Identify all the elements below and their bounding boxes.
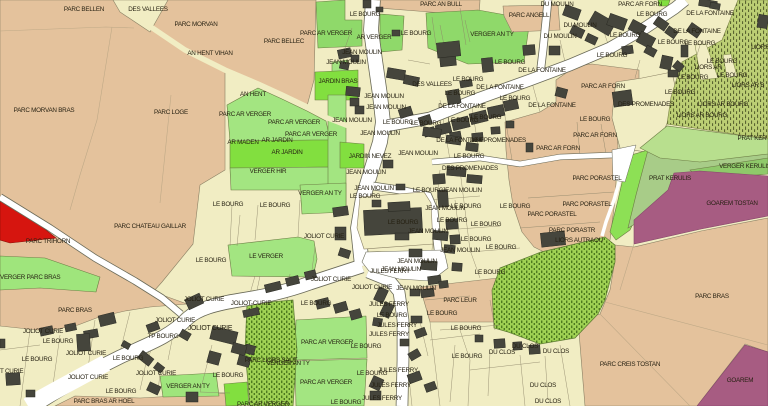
- svg-text:DU CLOS: DU CLOS: [530, 382, 556, 389]
- svg-text:PARC LEUR: PARC LEUR: [443, 297, 477, 304]
- svg-text:PARC BELLEN: PARC BELLEN: [64, 6, 105, 13]
- svg-text:LE BOURG: LE BOURG: [388, 219, 419, 226]
- svg-text:LE BOURG: LE BOURG: [685, 40, 716, 47]
- svg-text:PRAT KER: PRAT KER: [738, 135, 768, 142]
- svg-text:JARDIN BRAS: JARDIN BRAS: [319, 78, 358, 85]
- svg-text:PRAT KERULIS: PRAT KERULIS: [649, 175, 691, 182]
- svg-text:DES VALLEES: DES VALLEES: [412, 81, 452, 88]
- svg-text:JOLIOT CURIE: JOLIOT CURIE: [23, 328, 63, 335]
- svg-text:JOLIOT CURIE: JOLIOT CURIE: [184, 296, 224, 303]
- svg-text:LE BOURG: LE BOURG: [717, 72, 748, 79]
- svg-text:PARC PORASTR: PARC PORASTR: [549, 227, 596, 234]
- svg-text:JOLIOT CURIE: JOLIOT CURIE: [352, 284, 392, 291]
- svg-text:LE VERGER: LE VERGER: [249, 253, 283, 260]
- svg-text:LE BOURG: LE BOURG: [377, 312, 408, 319]
- svg-text:PARC AR FORN: PARC AR FORN: [536, 145, 580, 152]
- svg-text:DE LA FONTAINE: DE LA FONTAINE: [476, 84, 524, 91]
- svg-text:JEAN MOULIN: JEAN MOULIN: [396, 285, 436, 292]
- svg-text:LIORS: LIORS: [751, 44, 768, 51]
- svg-text:LE BOURG: LE BOURG: [413, 187, 444, 194]
- svg-text:PARC AR VERGER: PARC AR VERGER: [285, 131, 338, 138]
- svg-text:JULES FERRY: JULES FERRY: [378, 367, 419, 374]
- svg-text:LE BOURG: LE BOURG: [445, 90, 476, 97]
- svg-text:DES PROMENADES: DES PROMENADES: [442, 165, 498, 172]
- svg-text:DES VALLEES: DES VALLEES: [128, 6, 168, 13]
- svg-text:JULES FERRY: JULES FERRY: [377, 322, 418, 329]
- svg-text:LE BOURG: LE BOURG: [43, 338, 74, 345]
- svg-text:JEAN MOULIN: JEAN MOULIN: [408, 228, 448, 235]
- svg-text:JEAN MOULIN: JEAN MOULIN: [346, 169, 386, 176]
- svg-text:LIORS AR BOURG: LIORS AR BOURG: [698, 101, 749, 108]
- svg-text:VERGER AN TY: VERGER AN TY: [266, 360, 310, 367]
- svg-text:AR MADEN: AR MADEN: [227, 139, 259, 146]
- svg-text:LE BOURG: LE BOURG: [453, 76, 484, 83]
- svg-text:LE BOURG: LE BOURG: [383, 119, 414, 126]
- svg-text:JEAN MOULIN: JEAN MOULIN: [342, 49, 382, 56]
- svg-text:LE BOURG: LE BOURG: [500, 203, 531, 210]
- svg-text:JOLIOT CURIE: JOLIOT CURIE: [68, 374, 108, 381]
- svg-text:PARC PORASTEL: PARC PORASTEL: [562, 201, 612, 208]
- svg-text:AR JARDIN: AR JARDIN: [262, 137, 294, 144]
- svg-text:VERGER AN TY: VERGER AN TY: [470, 31, 514, 38]
- svg-text:LE BOURG: LE BOURG: [452, 353, 483, 360]
- svg-text:AN HENT: AN HENT: [240, 91, 266, 98]
- svg-text:T CURIE: T CURIE: [0, 368, 23, 375]
- svg-text:PARC AR FORN: PARC AR FORN: [581, 83, 625, 90]
- svg-text:LE BOURG: LE BOURG: [22, 356, 53, 363]
- svg-text:VERGER AN TY: VERGER AN TY: [166, 383, 210, 390]
- svg-text:AN HENT VIHAN: AN HENT VIHAN: [187, 50, 233, 57]
- svg-text:VERGER KERULIS: VERGER KERULIS: [719, 163, 768, 170]
- svg-text:AR VERGER: AR VERGER: [357, 34, 393, 41]
- svg-text:JOLIOT CURIE: JOLIOT CURIE: [155, 317, 195, 324]
- svg-text:LE BOURG: LE BOURG: [451, 325, 482, 332]
- svg-text:JEAN MOULIN: JEAN MOULIN: [397, 258, 437, 265]
- svg-text:LE BOURG: LE BOURG: [475, 269, 506, 276]
- svg-text:LE BOURG: LE BOURG: [351, 343, 382, 350]
- svg-text:DE LA FONTAINE: DE LA FONTAINE: [673, 28, 721, 35]
- svg-text:PARC CREIS TOSTAN: PARC CREIS TOSTAN: [600, 361, 661, 368]
- svg-text:VERGER PARC BRAS: VERGER PARC BRAS: [0, 274, 60, 281]
- svg-text:LIORS AR BOURG: LIORS AR BOURG: [677, 112, 728, 119]
- svg-text:LE BOURG: LE BOURG: [427, 310, 458, 317]
- svg-text:DU CLOS: DU CLOS: [543, 348, 569, 355]
- svg-text:DES PROMENADES: DES PROMENADES: [618, 101, 674, 108]
- svg-text:JULES FERRY: JULES FERRY: [371, 382, 412, 389]
- svg-text:PARC AR FORN: PARC AR FORN: [573, 132, 617, 139]
- svg-text:PARC BELLEC: PARC BELLEC: [264, 38, 305, 45]
- svg-text:PARC MORVAN: PARC MORVAN: [174, 21, 218, 28]
- svg-text:JEAN MOULIN: JEAN MOULIN: [326, 59, 366, 66]
- svg-text:LE BOURG: LE BOURG: [350, 193, 381, 200]
- svg-text:VERGER HIR: VERGER HIR: [250, 168, 287, 175]
- svg-text:DES PROMENADES: DES PROMENADES: [470, 137, 526, 144]
- svg-text:JEAN MOULIN: JEAN MOULIN: [354, 185, 394, 192]
- svg-text:AR JARDIN: AR JARDIN: [272, 149, 304, 156]
- svg-text:JEAN MOULIN: JEAN MOULIN: [360, 130, 400, 137]
- svg-text:JARDIN NEVEZ: JARDIN NEVEZ: [349, 153, 392, 160]
- svg-text:VERGER AN TY: VERGER AN TY: [298, 190, 342, 197]
- svg-text:LE BOURG: LE BOURG: [678, 74, 709, 81]
- svg-text:GOAREM: GOAREM: [727, 377, 754, 384]
- svg-text:LE BOURG: LE BOURG: [461, 236, 492, 243]
- svg-text:JULES FERRY: JULES FERRY: [370, 268, 411, 275]
- svg-text:LE BOURG: LE BOURG: [665, 89, 696, 96]
- svg-text:LIORS AR: LIORS AR: [694, 64, 722, 71]
- svg-text:DU CLOS: DU CLOS: [535, 398, 561, 405]
- svg-text:PARC ANGELL: PARC ANGELL: [509, 12, 550, 19]
- svg-text:LE BOURG: LE BOURG: [113, 355, 144, 362]
- svg-text:LIORS AUTRAOU: LIORS AUTRAOU: [555, 237, 604, 244]
- svg-text:PARC AR VERGER: PARC AR VERGER: [268, 119, 321, 126]
- svg-text:JULES FERRY: JULES FERRY: [362, 395, 403, 402]
- svg-text:DE LA FONTAINE: DE LA FONTAINE: [528, 102, 576, 109]
- svg-text:LE BOURG: LE BOURG: [580, 116, 611, 123]
- svg-text:LE BOURG: LE BOURG: [454, 153, 485, 160]
- svg-text:PARC AR VERGER: PARC AR VERGER: [300, 379, 353, 386]
- svg-text:PARC AR VERGER: PARC AR VERGER: [301, 339, 354, 346]
- svg-text:LE BOURG: LE BOURG: [350, 11, 381, 18]
- svg-text:DU CLOS: DU CLOS: [512, 343, 538, 350]
- svg-text:GOAREM TOSTAN: GOAREM TOSTAN: [706, 200, 758, 207]
- svg-text:LE BOURG: LE BOURG: [401, 30, 432, 37]
- svg-text:LE BOURG: LE BOURG: [471, 221, 502, 228]
- svg-text:PARC PORASTEL: PARC PORASTEL: [572, 175, 622, 182]
- svg-text:PARC BRAS AR HOEL: PARC BRAS AR HOEL: [74, 398, 135, 405]
- svg-text:LE BOURG: LE BOURG: [411, 120, 442, 127]
- svg-text:PARC TRIHORN: PARC TRIHORN: [26, 238, 71, 245]
- svg-text:JOLIOT CURIE: JOLIOT CURIE: [311, 276, 351, 283]
- svg-text:PARC AR FORN: PARC AR FORN: [618, 1, 662, 8]
- svg-text:JEAN MOULIN: JEAN MOULIN: [440, 247, 480, 254]
- svg-text:PARC PORASTEL: PARC PORASTEL: [527, 211, 577, 218]
- svg-text:LE BOURG: LE BOURG: [610, 32, 641, 39]
- svg-text:DU MOULIN: DU MOULIN: [540, 1, 574, 8]
- svg-text:LE BOURG: LE BOURG: [106, 388, 137, 395]
- svg-text:JOLIOT CURIE: JOLIOT CURIE: [136, 370, 176, 377]
- svg-text:LE BOURG: LE BOURG: [437, 217, 468, 224]
- svg-text:JEAN MOULIN: JEAN MOULIN: [332, 117, 372, 124]
- svg-text:LE BOURG: LE BOURG: [500, 95, 531, 102]
- svg-text:PARC BRAS: PARC BRAS: [58, 307, 92, 314]
- svg-text:LE BOURG: LE BOURG: [471, 114, 502, 121]
- svg-text:DU CLOS: DU CLOS: [489, 349, 515, 356]
- svg-text:JOLIOT CURIE: JOLIOT CURIE: [66, 350, 106, 357]
- svg-text:PARC MORVAN BRAS: PARC MORVAN BRAS: [14, 107, 75, 114]
- svg-text:LE BOURG: LE BOURG: [486, 244, 517, 251]
- svg-text:JEAN MOULIN: JEAN MOULIN: [442, 187, 482, 194]
- svg-text:LE BOURG: LE BOURG: [301, 300, 332, 307]
- svg-text:DU MOULIN: DU MOULIN: [543, 33, 577, 40]
- svg-text:DE LA FONTAINE: DE LA FONTAINE: [518, 67, 566, 74]
- svg-text:PARC AR VERGER: PARC AR VERGER: [219, 111, 272, 118]
- svg-text:DE LA FONTAINE: DE LA FONTAINE: [686, 10, 734, 17]
- svg-text:JULES FERRY: JULES FERRY: [369, 331, 410, 338]
- svg-text:JOLIOT-CURIE: JOLIOT-CURIE: [231, 300, 271, 307]
- svg-text:PARC AN BULL: PARC AN BULL: [420, 1, 462, 8]
- svg-text:DE LA FONTAINE: DE LA FONTAINE: [438, 103, 486, 110]
- svg-text:PARC AR VERGER: PARC AR VERGER: [300, 30, 353, 37]
- svg-text:JOLIOT CURIE: JOLIOT CURIE: [304, 233, 344, 240]
- svg-text:LE BOURG: LE BOURG: [196, 257, 227, 264]
- svg-text:LE BOURG: LE BOURG: [213, 201, 244, 208]
- svg-text:DU MOULIN: DU MOULIN: [563, 22, 597, 29]
- svg-text:LE BOURG: LE BOURG: [331, 399, 362, 406]
- svg-text:LE BOURG: LE BOURG: [213, 372, 244, 379]
- svg-text:TP BOURG: TP BOURG: [148, 333, 179, 340]
- svg-text:JEAN MOULIN: JEAN MOULIN: [366, 104, 406, 111]
- svg-text:LE BOURG: LE BOURG: [597, 52, 628, 59]
- svg-text:JEAN MOULIN: JEAN MOULIN: [364, 93, 404, 100]
- svg-text:JULES FERRY: JULES FERRY: [369, 301, 410, 308]
- svg-text:PARC BRAS: PARC BRAS: [695, 293, 729, 300]
- svg-text:LIORS AR B: LIORS AR B: [732, 82, 765, 89]
- svg-text:LE BOURG: LE BOURG: [260, 202, 291, 209]
- svg-text:LE BOURG: LE BOURG: [495, 59, 526, 66]
- svg-text:PARC LOGE: PARC LOGE: [154, 109, 188, 116]
- svg-text:PARC AR VERGER: PARC AR VERGER: [237, 401, 290, 406]
- svg-text:LE BOURG: LE BOURG: [637, 11, 668, 18]
- svg-text:JOLIOT CURIE: JOLIOT CURIE: [188, 325, 233, 332]
- svg-text:PARC CHATEAU GAILLAR: PARC CHATEAU GAILLAR: [114, 223, 186, 230]
- svg-text:JEAN MOULIN: JEAN MOULIN: [398, 150, 438, 157]
- svg-text:LE BOURG: LE BOURG: [451, 203, 482, 210]
